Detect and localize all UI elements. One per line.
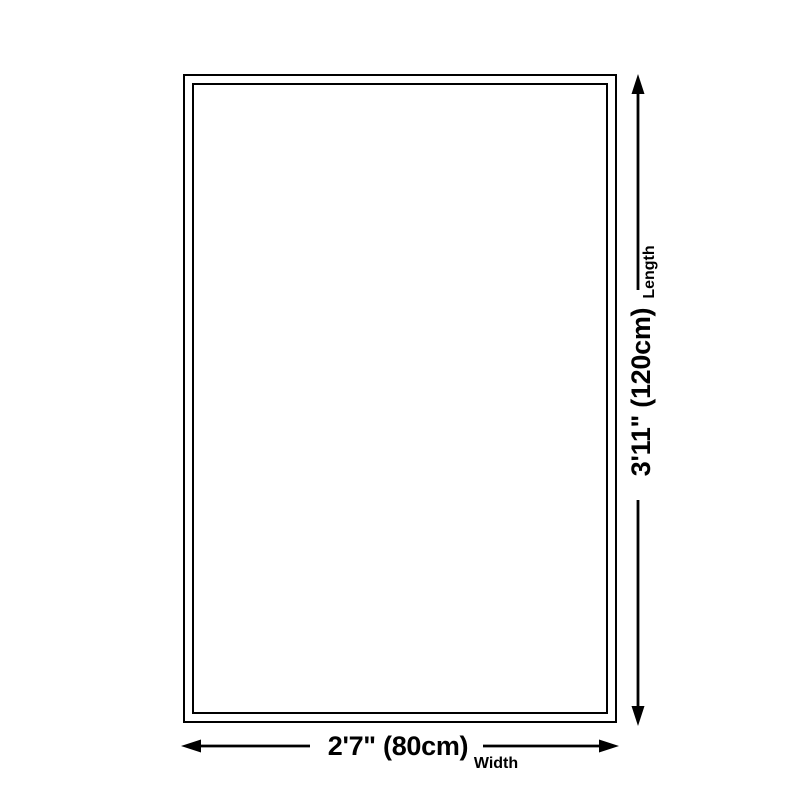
arrowhead-up-icon [632,74,645,94]
length-label: Length [641,245,658,298]
width-dimension-arrow: 2'7" (80cm) Width [181,731,619,772]
product-outline [183,74,617,723]
width-value: 2'7" (80cm) [328,731,469,761]
arrowhead-down-icon [632,706,645,726]
arrowhead-right-icon [599,740,619,753]
width-label: Width [474,755,518,772]
size-diagram: 3'11" (120cm) Length 2'7" (80cm) Width [0,0,800,800]
length-value: 3'11" (120cm) [626,308,656,476]
product-outline-inner [192,83,608,714]
length-dimension-arrow: 3'11" (120cm) Length [626,74,658,726]
arrowhead-left-icon [181,740,201,753]
